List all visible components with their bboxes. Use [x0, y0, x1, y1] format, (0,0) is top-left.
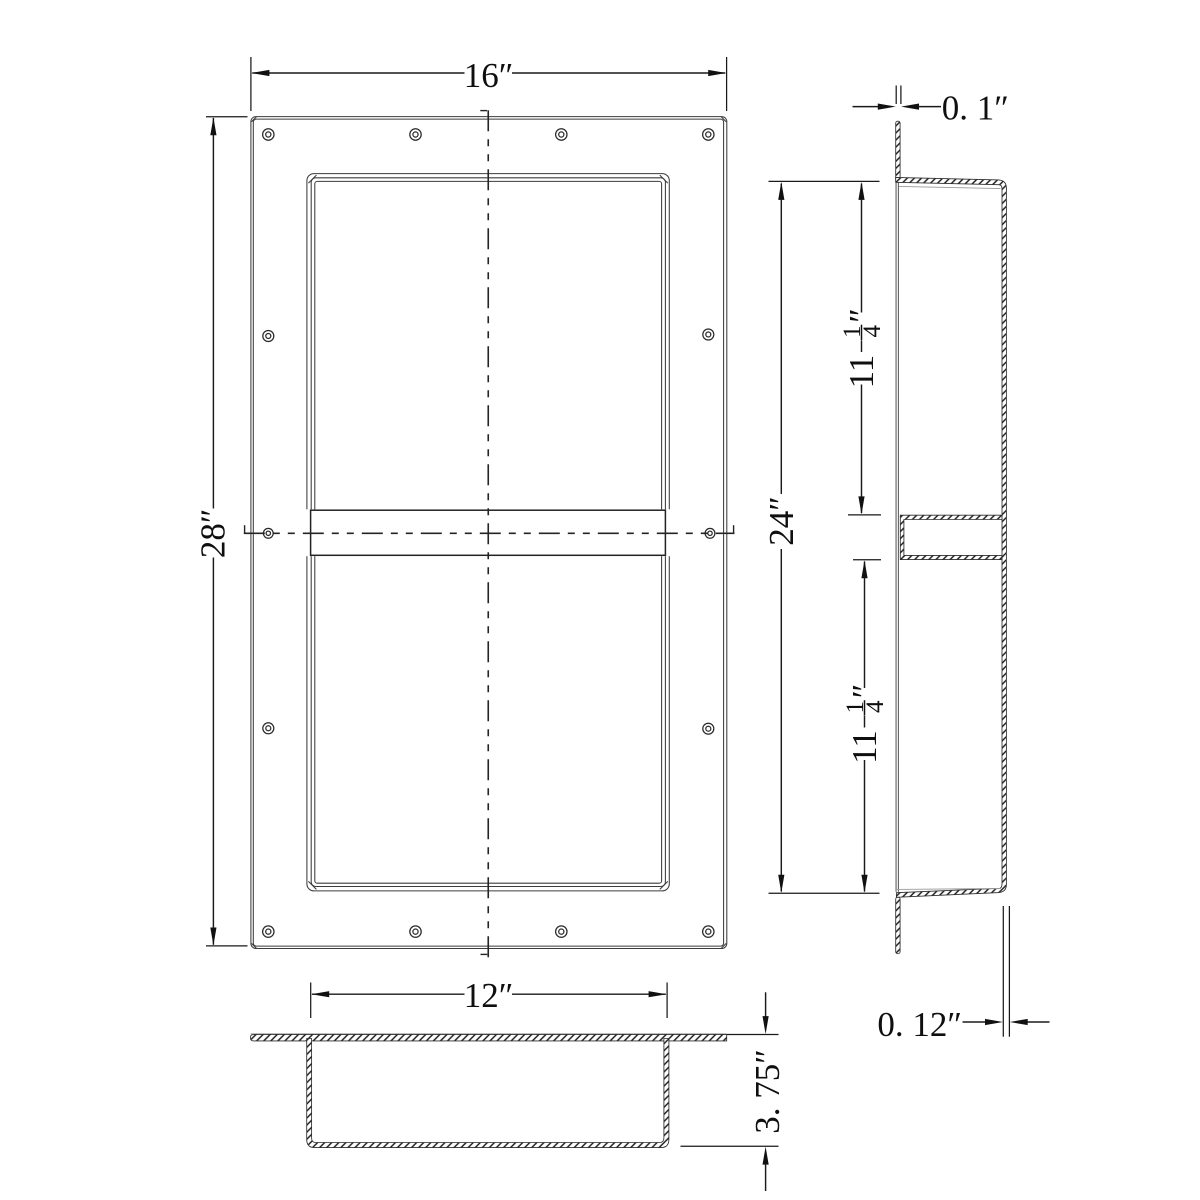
- svg-text:4: 4: [862, 700, 889, 713]
- svg-text:4: 4: [859, 324, 886, 337]
- svg-text:11: 11: [842, 355, 881, 389]
- svg-text:0. 12″: 0. 12″: [877, 1005, 962, 1044]
- svg-text:11: 11: [845, 730, 884, 764]
- svg-text:12″: 12″: [464, 976, 514, 1015]
- svg-text:″: ″: [842, 308, 881, 323]
- svg-text:28″: 28″: [194, 509, 233, 559]
- svg-text:16″: 16″: [464, 56, 514, 95]
- svg-text:24″: 24″: [762, 496, 801, 546]
- svg-text:″: ″: [845, 684, 884, 699]
- svg-text:3. 75″: 3. 75″: [748, 1049, 787, 1134]
- svg-text:0. 1″: 0. 1″: [942, 89, 1009, 128]
